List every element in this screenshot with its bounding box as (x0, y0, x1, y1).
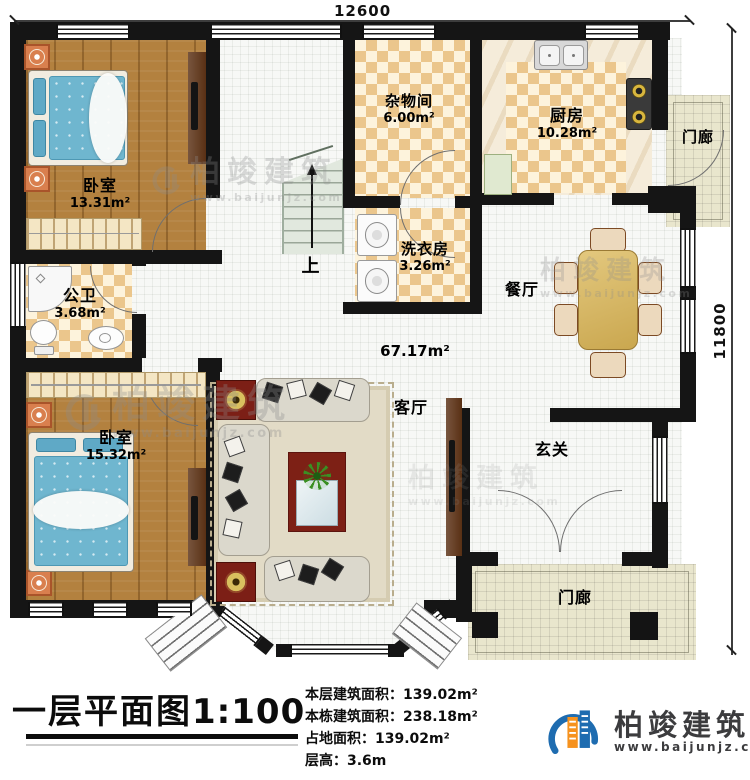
wall-bathroom-right (132, 250, 146, 266)
stat-value: 3.6m (347, 753, 386, 769)
window (28, 602, 64, 616)
room-name: 客厅 (376, 398, 446, 418)
wall-bedroom1-right (206, 22, 220, 198)
room-label-porch-top: 门廊 (666, 128, 730, 147)
stat-value: 238.18m² (403, 709, 478, 725)
sofa-pillow (222, 518, 242, 538)
washbasin-drain (99, 333, 111, 343)
company-logo: 柏竣建筑 www.baijunjz.com (544, 702, 750, 762)
room-label-bedroom1: 卧室 13.31m² (55, 176, 145, 212)
stat-label: 占地面积： (305, 731, 375, 747)
wall-kitchen-corner (648, 186, 696, 213)
room-label-laundry: 洗衣房 3.26m² (380, 240, 470, 275)
plan-title-text: 一层平面图 (12, 684, 192, 733)
nightstand (24, 166, 50, 192)
plant-icon (303, 462, 331, 490)
wall-laundry-bottom (343, 302, 482, 314)
stat-row: 层高：3.6m (305, 750, 478, 772)
floor-plan-canvas: 柏竣建筑 www.baijunjz.com 柏竣建筑 www.baijunjz.… (0, 0, 750, 780)
stat-row: 占地面积：139.02m² (305, 728, 478, 750)
room-area: 6.00m² (364, 111, 454, 127)
stairs-up-label: 上 (296, 256, 326, 279)
stairs-direction: 上 (296, 256, 326, 279)
window (210, 24, 342, 38)
wall-bathroom-bottom (10, 358, 142, 372)
kitchen-sink (534, 40, 588, 70)
room-label-bathroom: 公卫 3.68m² (40, 286, 120, 322)
wall-entrance (470, 552, 498, 566)
window (584, 24, 640, 38)
room-label-bedroom2: 卧室 15.32m² (70, 428, 162, 464)
window (92, 602, 128, 616)
dining-chair (554, 262, 578, 294)
wall-bedroom1-bottom (10, 250, 222, 264)
stat-value: 139.02m² (403, 687, 478, 703)
toilet-tank (34, 346, 54, 355)
room-area: 13.31m² (55, 196, 145, 212)
pillow (33, 120, 46, 157)
wall-storage-kitchen (470, 22, 482, 314)
tv-icon (191, 82, 198, 130)
room-name: 门廊 (540, 588, 610, 608)
room-name: 公卫 (40, 286, 120, 306)
tv-icon (191, 496, 198, 540)
lamp-side-table (216, 562, 256, 602)
room-area: 10.28m² (522, 126, 612, 142)
burner-icon (632, 84, 646, 98)
bed-sheet (33, 491, 129, 529)
wall-porch-left (456, 552, 472, 622)
room-label-foyer: 玄关 (517, 440, 587, 460)
dining-chair (638, 304, 662, 336)
stairs-up-arrow-icon (311, 170, 313, 248)
sink-basin (539, 45, 560, 66)
stat-row: 本栋建筑面积：238.18m² (305, 706, 478, 728)
room-name: 门廊 (666, 128, 730, 147)
room-label-living: 客厅 (376, 398, 446, 418)
pillow (33, 78, 46, 115)
room-name: 卧室 (70, 428, 162, 448)
lamp-side-table (216, 380, 256, 420)
room-area: 3.26m² (380, 259, 470, 275)
window (680, 228, 696, 288)
dimension-top-line (14, 20, 690, 22)
dining-chair (638, 262, 662, 294)
nightstand (24, 44, 50, 70)
area-value: 67.17m² (375, 342, 455, 361)
cabinet (484, 154, 512, 195)
dimension-right-line (731, 28, 733, 655)
window (362, 24, 436, 38)
toilet (30, 320, 57, 345)
room-label-porch-bottom: 门廊 (540, 588, 610, 608)
sink-basin (563, 45, 584, 66)
dining-chair (554, 304, 578, 336)
room-name: 杂物间 (364, 92, 454, 111)
wall-storage-bottom (343, 196, 400, 208)
room-label-dining: 餐厅 (487, 280, 557, 300)
title-underline (26, 734, 298, 739)
window (56, 24, 130, 38)
wall-bay (390, 644, 404, 657)
company-logo-icon (544, 702, 604, 762)
room-area: 3.68m² (40, 306, 120, 322)
nightstand (26, 402, 52, 428)
room-name: 洗衣房 (380, 240, 470, 259)
window (652, 436, 668, 504)
wardrobe (26, 218, 142, 250)
wall-storage-left (343, 22, 355, 208)
dimension-top-value: 12600 (334, 2, 391, 20)
open-area-label: 67.17m² (375, 342, 455, 361)
wall-dining-foyer (550, 408, 696, 422)
plan-scale: 1:100 (192, 692, 305, 732)
company-name: 柏竣建筑 (614, 710, 750, 740)
stat-label: 本层建筑面积： (305, 687, 403, 703)
nightstand (26, 570, 52, 596)
stats-block: 本层建筑面积：139.02m² 本栋建筑面积：238.18m² 占地面积：139… (305, 684, 478, 772)
dimension-right-value: 11800 (711, 301, 729, 361)
wall-bay (276, 644, 290, 657)
title-underline-light (26, 744, 298, 746)
stat-label: 层高： (305, 753, 347, 769)
wall-bathroom-right (132, 314, 146, 358)
window (290, 644, 390, 657)
room-label-storage: 杂物间 6.00m² (364, 92, 454, 127)
stove (626, 78, 652, 130)
room-area: 15.32m² (70, 448, 162, 464)
porch-pillar (630, 612, 658, 640)
bed (28, 70, 128, 166)
burner-icon (632, 110, 646, 124)
company-website: www.baijunjz.com (614, 740, 750, 754)
room-name: 厨房 (522, 106, 612, 126)
stat-row: 本层建筑面积：139.02m² (305, 684, 478, 706)
plan-title: 一层平面图 1:100 (12, 684, 305, 733)
stat-label: 本栋建筑面积： (305, 709, 403, 725)
dining-chair (590, 352, 626, 378)
bed-sheet (89, 73, 127, 163)
porch-bottom-floor (468, 564, 696, 660)
tv-icon (449, 440, 455, 512)
window (680, 298, 696, 354)
dining-table (578, 250, 638, 350)
wall-kitchen-right (652, 22, 668, 130)
porch-pillar (472, 612, 498, 638)
stat-value: 139.02m² (375, 731, 450, 747)
room-name: 玄关 (517, 440, 587, 460)
wardrobe (26, 372, 206, 398)
room-name: 餐厅 (487, 280, 557, 300)
window (10, 262, 26, 328)
dining-chair (590, 228, 626, 252)
room-name: 卧室 (55, 176, 145, 196)
room-label-kitchen: 厨房 10.28m² (522, 106, 612, 142)
wall-entrance (622, 552, 668, 566)
window (156, 602, 192, 616)
